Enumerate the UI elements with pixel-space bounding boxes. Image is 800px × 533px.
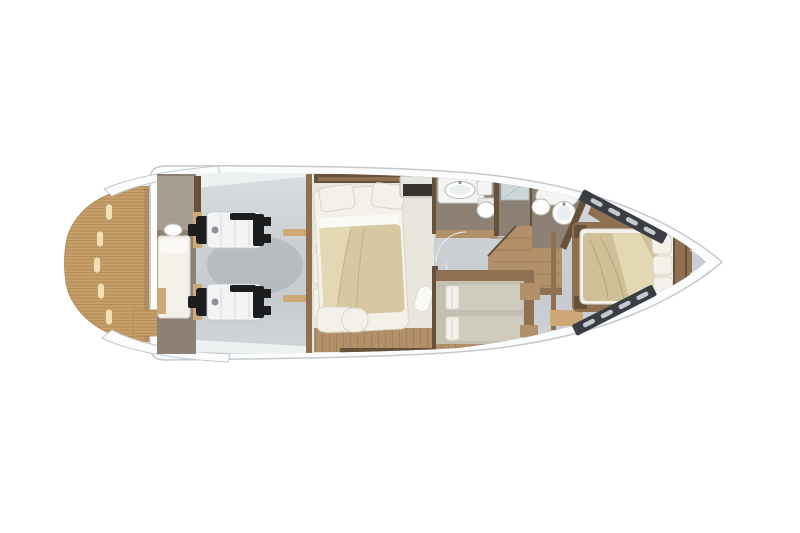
master-head-threshold bbox=[436, 230, 498, 238]
vip-pillow bbox=[653, 256, 673, 276]
master-seat bbox=[342, 308, 368, 332]
platform-slot bbox=[94, 257, 101, 273]
platform-slot bbox=[97, 231, 104, 247]
port-engine bbox=[188, 212, 271, 248]
starboard-engine bbox=[188, 284, 271, 320]
vip-faucet bbox=[562, 202, 565, 205]
engine-manifold bbox=[230, 213, 256, 220]
platform-slot bbox=[98, 283, 105, 299]
crew-quarters bbox=[156, 174, 201, 356]
master-pillow bbox=[318, 184, 355, 212]
guest-top-wall bbox=[436, 270, 534, 281]
corridor-cabinet bbox=[520, 283, 540, 300]
master-dresser-front bbox=[403, 184, 432, 196]
engine-mount-nub bbox=[262, 217, 271, 226]
engine-pulley bbox=[212, 299, 219, 306]
engine-shaft bbox=[188, 224, 197, 236]
sink-basin bbox=[450, 185, 471, 195]
engine-mount-nub bbox=[262, 289, 271, 298]
floorplan-canvas bbox=[0, 0, 800, 533]
crew-berth-pillow bbox=[160, 239, 188, 253]
platform-slot bbox=[106, 309, 113, 325]
vip-toilet bbox=[532, 199, 550, 215]
engine-manifold bbox=[230, 285, 256, 292]
vip-sink-basin bbox=[557, 206, 572, 221]
head-divider-wall bbox=[494, 174, 499, 236]
toilet bbox=[477, 202, 495, 218]
bath-cabinet bbox=[477, 181, 492, 195]
crew-cabinet bbox=[156, 288, 166, 314]
engine-shaft bbox=[188, 296, 197, 308]
crew-head-floor bbox=[157, 176, 194, 230]
platform-slot bbox=[106, 204, 113, 220]
master-cabin bbox=[306, 174, 438, 358]
engine-mount-nub bbox=[262, 306, 271, 315]
crew-sink bbox=[164, 224, 182, 236]
faucet bbox=[458, 181, 461, 184]
yacht-floorplan bbox=[0, 0, 800, 533]
engine-mount-nub bbox=[262, 234, 271, 243]
engine-pulley bbox=[212, 227, 219, 234]
